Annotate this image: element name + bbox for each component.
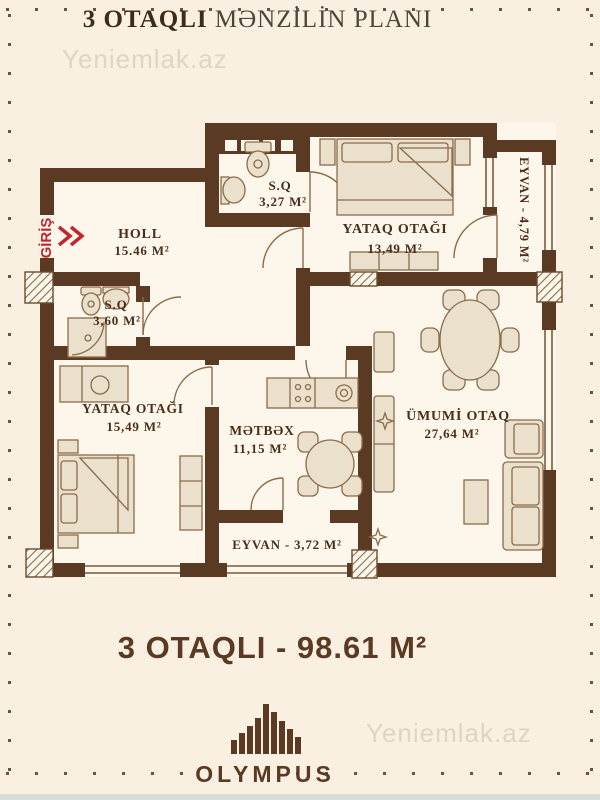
toilet-icon (81, 287, 101, 315)
pyramid-logo-icon (220, 702, 310, 754)
window-bedroom-top (483, 158, 497, 207)
svg-text:EYVAN - 3,72 M²: EYVAN - 3,72 M² (232, 537, 342, 552)
wardrobe-icon (180, 456, 202, 530)
desk-icon (60, 366, 128, 402)
window-bedroom-left-bottom (85, 563, 180, 577)
svg-text:ÜMUMİ OTAQ: ÜMUMİ OTAQ (406, 407, 510, 424)
svg-text:S.Q: S.Q (105, 297, 128, 312)
kitchen-counter-icon (267, 378, 358, 408)
dining-table-round-icon (298, 432, 362, 496)
svg-text:3,27 M²: 3,27 M² (259, 194, 307, 209)
svg-text:15,49 M²: 15,49 M² (106, 419, 161, 434)
svg-text:HOLL: HOLL (118, 227, 162, 242)
floor-plan-drawing: GİRİŞ HOLL 15.46 M² S.Q 3,27 M² YATAQ OT… (0, 0, 600, 800)
coffee-table-icon (464, 480, 488, 524)
svg-text:S.Q: S.Q (269, 178, 292, 193)
sofa-left-icon (374, 332, 394, 492)
apartment-summary: 3 OTAQLI - 98.61 M² (0, 630, 545, 666)
svg-text:11,15 M²: 11,15 M² (233, 441, 287, 456)
svg-text:13,49 M²: 13,49 M² (367, 241, 422, 256)
window-eyvan-right (542, 165, 556, 250)
svg-text:YATAQ OTAĞI: YATAQ OTAĞI (342, 220, 447, 237)
svg-text:YATAQ OTAĞI: YATAQ OTAĞI (82, 401, 184, 416)
room-eyvan-bottom: EYVAN - 3,72 M² (232, 537, 342, 552)
bed-double-icon (320, 139, 470, 215)
room-eyvan-right: EYVAN - 4,79 M² (517, 157, 531, 263)
sofa-icon (503, 462, 543, 550)
sink-icon (221, 177, 245, 204)
svg-text:MƏTBƏX: MƏTBƏX (229, 423, 294, 438)
brand-logo: OLYMPUS (175, 702, 355, 788)
bed-double-icon (58, 440, 134, 548)
svg-text:27,64 M²: 27,64 M² (424, 426, 479, 441)
svg-text:EYVAN - 4,79 M²: EYVAN - 4,79 M² (517, 157, 531, 263)
window-living-right (542, 330, 556, 470)
entrance-label: GİRİŞ (38, 218, 55, 259)
floor-plan-page: 3 OTAQLI MƏNZİLİN PLANI Yeniemlak.az Yen… (0, 0, 600, 800)
armchair-icon (505, 420, 543, 458)
toilet-icon (245, 142, 271, 177)
room-holl: HOLL 15.46 M² (114, 227, 169, 258)
window-eyvan-bottom (227, 563, 347, 577)
svg-text:3,60 M²: 3,60 M² (93, 313, 141, 328)
svg-text:15.46 M²: 15.46 M² (114, 243, 169, 258)
brand-name: OLYMPUS (175, 761, 355, 788)
